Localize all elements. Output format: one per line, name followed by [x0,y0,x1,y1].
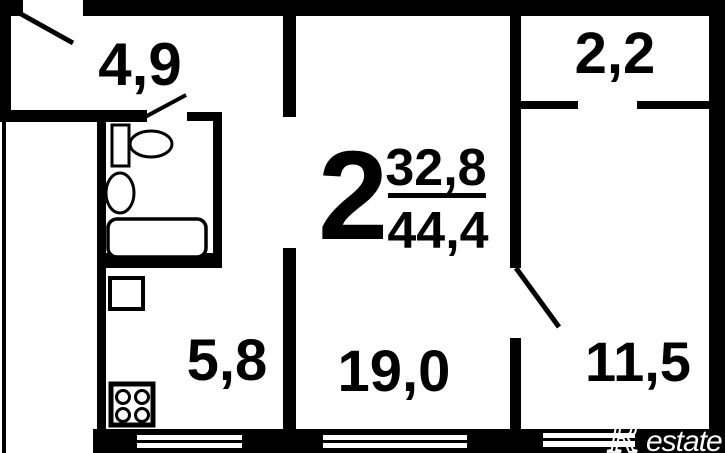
total-area-label: 44,4 [387,202,488,260]
kitchen-window-icon [137,443,242,448]
wall-left-lower [97,110,106,453]
living-room-window-icon [323,443,467,448]
apartment-type-label: 2 [318,125,388,266]
toilet-icon [106,173,134,213]
wall-divider-hall-living [283,14,296,117]
wall-divider-kitchen-living [283,248,296,431]
wall-bathroom-right [213,112,222,268]
floorplan-canvas: 4,9 2,2 5,8 19,0 11,5 2 32,8 44,4 R esta… [0,0,725,453]
cabinet-icon [110,278,143,309]
bathtub-icon [108,219,206,257]
floorplan-svg: 4,9 2,2 5,8 19,0 11,5 2 32,8 44,4 R esta… [0,0,725,453]
logo-text-estate: estate [646,425,722,453]
hallway-area-label: 4,9 [98,31,181,98]
wall-top [83,0,725,16]
logo-letter-r: R [607,410,637,453]
wall-balcony-parapet-left [512,101,578,109]
living-room-area-label: 19,0 [338,339,451,404]
wall-balcony-parapet-right [637,101,715,109]
sink-counter-icon [112,125,129,166]
stove-burner-icon [136,391,149,404]
area-fraction-divider [388,193,486,198]
wall-right [709,0,725,453]
living-area-label: 32,8 [385,139,486,197]
living-room-window-icon [323,435,467,440]
outline-left-thin [2,122,6,453]
balcony-area-label: 2,2 [575,21,656,86]
wall-divider-living-bedroom-upper [510,14,521,268]
wall-left-upper [0,0,11,122]
stove-burner-icon [117,391,130,404]
wall-divider-living-bedroom-lower [510,338,521,431]
wall-hallway-bottom [0,110,147,122]
kitchen-fixtures [111,384,153,425]
stove-burner-icon [117,409,130,422]
kitchen-area-label: 5,8 [187,328,268,393]
sink-bowl-icon [130,131,172,157]
kitchen-window-icon [137,435,242,440]
stove-burner-icon [136,409,149,422]
bedroom-area-label: 11,5 [585,330,691,393]
